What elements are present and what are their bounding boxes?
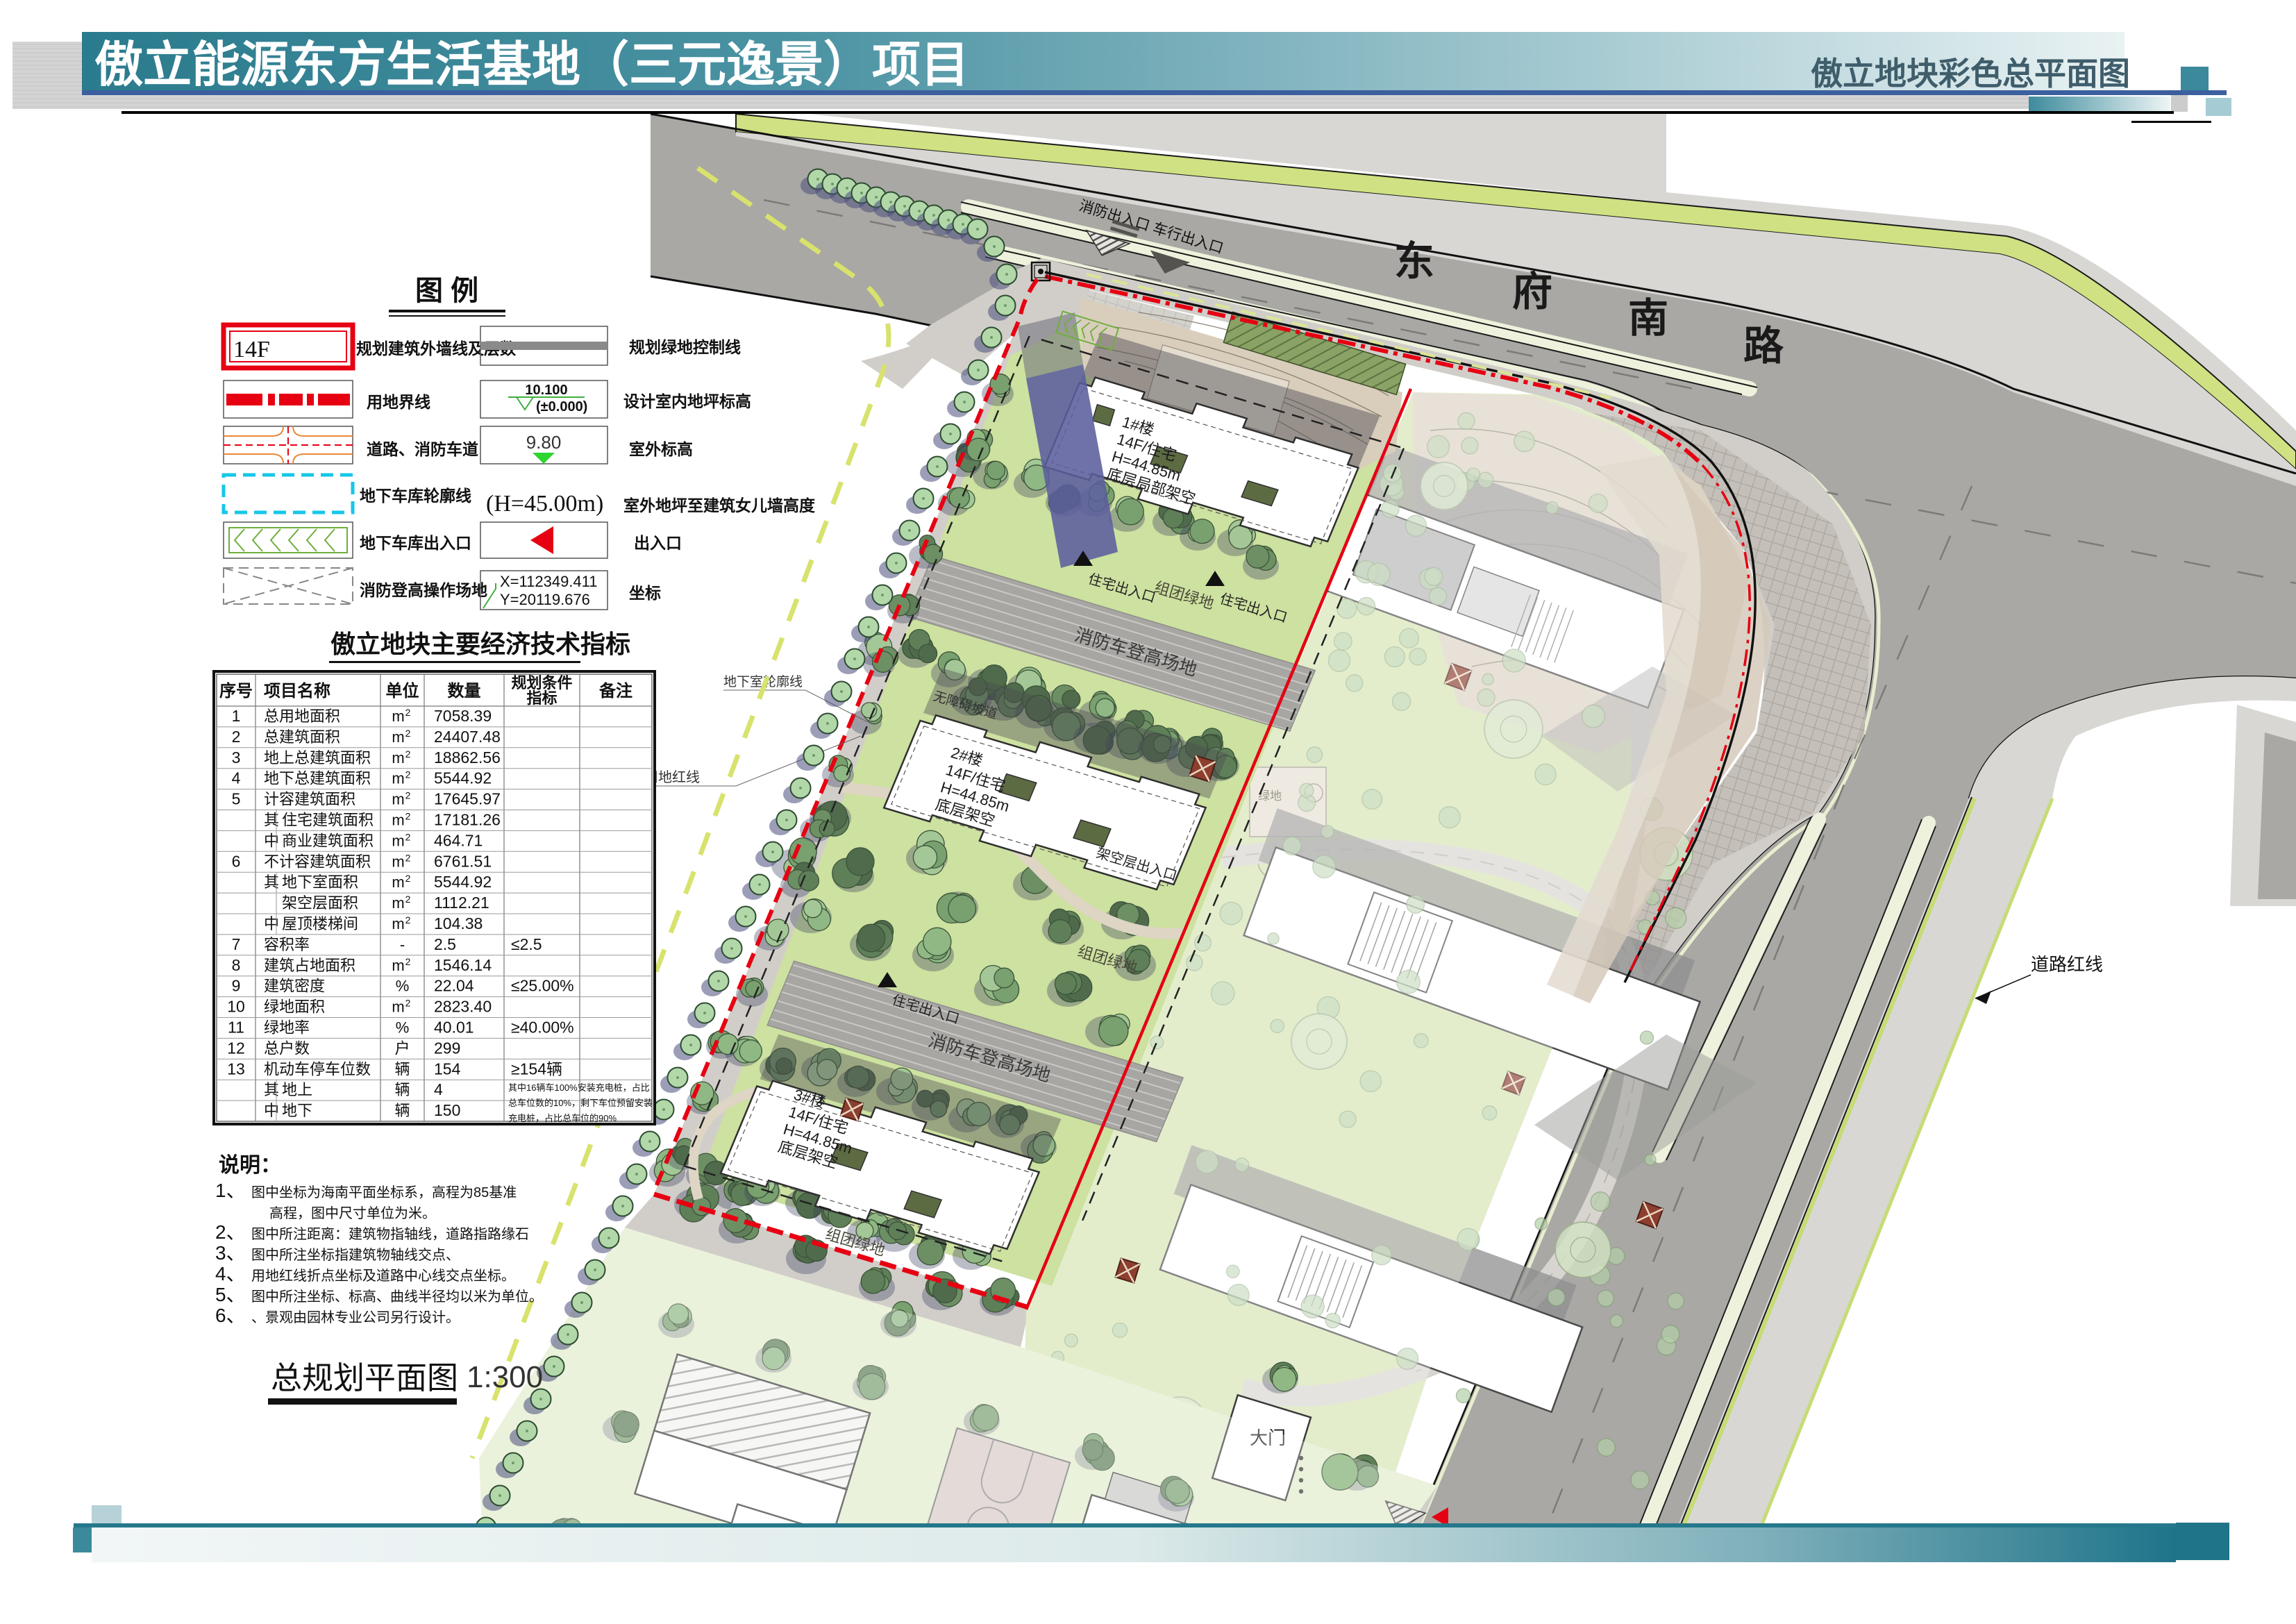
svg-text:≥154辆: ≥154辆 [511,1060,562,1078]
svg-text:地下: 地下 [282,1102,312,1119]
svg-text:指标: 指标 [526,689,557,707]
svg-text:5544.92: 5544.92 [434,769,492,787]
svg-text:m: m [392,915,404,932]
svg-text:总规划平面图: 总规划平面图 [271,1360,458,1396]
svg-text:14F: 14F [233,337,270,362]
svg-text:1:300: 1:300 [467,1360,543,1394]
svg-text:地下车库出入口: 地下车库出入口 [360,534,471,552]
svg-text:2: 2 [405,748,411,760]
svg-text:中: 中 [264,915,279,932]
svg-text:m: m [392,998,404,1016]
svg-text:住宅建筑面积: 住宅建筑面积 [282,812,374,829]
svg-text:道路红线: 道路红线 [2031,954,2103,975]
svg-text:40.01: 40.01 [434,1019,474,1037]
svg-text:辆: 辆 [394,1060,410,1078]
svg-text:154: 154 [434,1060,461,1078]
svg-text:m: m [392,853,404,870]
svg-text:辆: 辆 [394,1102,410,1119]
svg-text:2: 2 [405,956,411,967]
svg-text:2823.40: 2823.40 [434,998,492,1016]
svg-text:m: m [392,812,404,829]
svg-text:m: m [392,770,404,787]
svg-text:其: 其 [264,873,279,891]
svg-text:2: 2 [405,811,411,822]
svg-text:6: 6 [232,852,241,870]
svg-text:序号: 序号 [219,681,253,701]
svg-text:2: 2 [405,769,411,780]
svg-text:图中所注距离：建筑物指轴线，道路指路缘石: 图中所注距离：建筑物指轴线，道路指路缘石 [251,1226,529,1242]
svg-text:说明：: 说明： [219,1154,281,1177]
svg-text:7: 7 [232,935,241,953]
svg-text:m: m [392,791,404,808]
svg-text:%: % [396,978,410,995]
svg-text:2: 2 [405,728,411,739]
svg-text:总建筑面积: 总建筑面积 [264,728,340,746]
svg-text:17181.26: 17181.26 [434,811,501,829]
svg-text:户: 户 [394,1039,410,1057]
svg-text:绿地率: 绿地率 [264,1019,310,1037]
svg-text:傲立地块主要经济技术指标: 傲立地块主要经济技术指标 [330,630,630,658]
svg-text:其中16辆车100%安装充电桩，占比: 其中16辆车100%安装充电桩，占比 [508,1082,650,1093]
svg-text:11: 11 [228,1019,244,1037]
svg-text:图 例: 图 例 [415,276,478,306]
svg-text:架空层面积: 架空层面积 [282,894,358,912]
svg-text:12: 12 [227,1039,245,1057]
svg-text:备注: 备注 [598,681,632,701]
svg-text:设计室内地坪标高: 设计室内地坪标高 [623,392,751,410]
svg-text:7058.39: 7058.39 [434,707,492,725]
svg-text:22.04: 22.04 [434,977,474,995]
svg-text:≤25.00%: ≤25.00% [511,977,574,995]
svg-text:项目名称: 项目名称 [264,681,330,701]
svg-text:地下车库轮廓线: 地下车库轮廓线 [360,487,471,505]
svg-text:m: m [392,708,404,725]
svg-text:1、: 1、 [215,1180,246,1201]
svg-text:1: 1 [232,707,241,725]
svg-text:4: 4 [434,1080,443,1098]
svg-text:建筑占地面积: 建筑占地面积 [264,957,355,974]
svg-text:地上总建筑面积: 地上总建筑面积 [264,749,371,767]
svg-text:13: 13 [227,1060,245,1078]
svg-text:6、: 6、 [215,1305,246,1326]
svg-text:东: 东 [1394,239,1434,284]
svg-text:m: m [392,957,404,974]
svg-text:2.5: 2.5 [434,935,456,953]
svg-text:2: 2 [405,914,411,926]
svg-text:商业建筑面积: 商业建筑面积 [282,832,374,849]
svg-text:充电桩，占比总车位的90%: 充电桩，占比总车位的90% [508,1113,617,1123]
svg-text:道路、消防车道: 道路、消防车道 [367,440,478,458]
svg-text:4、: 4、 [215,1263,246,1284]
svg-text:2: 2 [405,852,411,863]
svg-text:路: 路 [1743,324,1784,369]
svg-text:8: 8 [232,956,241,974]
svg-text:2: 2 [232,728,241,746]
svg-text:9: 9 [232,977,241,995]
svg-text:2: 2 [405,894,411,905]
svg-text:室外地坪至建筑女儿墙高度: 室外地坪至建筑女儿墙高度 [623,496,816,514]
svg-text:-: - [400,936,405,953]
svg-text:≥40.00%: ≥40.00% [511,1019,574,1037]
svg-text:2、: 2、 [215,1221,246,1243]
svg-text:m: m [392,832,404,849]
svg-text:计容建筑面积: 计容建筑面积 [264,791,355,808]
svg-text:Y=20119.676: Y=20119.676 [500,591,590,608]
svg-text:不计容建筑面积: 不计容建筑面积 [264,853,371,870]
svg-text:辆: 辆 [394,1081,410,1098]
svg-text:图中坐标为海南平面坐标系，高程为85基准: 图中坐标为海南平面坐标系，高程为85基准 [251,1184,517,1200]
svg-text:其: 其 [264,1081,279,1098]
svg-text:地下室面积: 地下室面积 [282,873,358,891]
svg-text:(±0.000): (±0.000) [536,399,587,415]
svg-text:室外标高: 室外标高 [629,440,693,458]
svg-text:规划绿地控制线: 规划绿地控制线 [629,338,741,356]
svg-text:104.38: 104.38 [434,914,483,932]
svg-text:1112.21: 1112.21 [434,894,489,912]
svg-text:2: 2 [405,831,411,842]
svg-text:18862.56: 18862.56 [434,748,501,767]
svg-text:1546.14: 1546.14 [434,956,492,974]
svg-text:3、: 3、 [215,1242,246,1264]
svg-text:464.71: 464.71 [434,831,483,849]
svg-text:总户数: 总户数 [264,1039,310,1057]
svg-text:2: 2 [405,707,411,718]
svg-text:容积率: 容积率 [264,936,310,953]
svg-text:傲立能源东方生活基地（三元逸景）项目: 傲立能源东方生活基地（三元逸景）项目 [94,37,969,92]
svg-text:X=112349.411: X=112349.411 [500,573,598,590]
svg-text:用地红线折点坐标及道路中心线交点坐标。: 用地红线折点坐标及道路中心线交点坐标。 [251,1268,515,1284]
svg-text:m: m [392,894,404,912]
svg-text:消防登高操作场地: 消防登高操作场地 [360,581,487,599]
svg-text:、景观由园林专业公司另行设计。: 、景观由园林专业公司另行设计。 [251,1309,460,1325]
svg-text:m: m [392,728,404,746]
svg-text:150: 150 [434,1101,460,1119]
svg-text:地上: 地上 [282,1081,312,1098]
svg-text:m: m [392,749,404,767]
svg-text:用地界线: 用地界线 [367,393,430,411]
svg-text:(H=45.00m): (H=45.00m) [486,491,603,517]
svg-text:299: 299 [434,1039,460,1057]
svg-text:傲立地块彩色总平面图: 傲立地块彩色总平面图 [1811,56,2130,92]
svg-text:5544.92: 5544.92 [434,873,492,891]
svg-text:3: 3 [232,748,241,767]
svg-text:9.80: 9.80 [526,432,562,453]
svg-text:中: 中 [264,1102,279,1119]
svg-text:南: 南 [1628,296,1668,341]
svg-text:数量: 数量 [448,682,481,701]
svg-text:建筑密度: 建筑密度 [264,978,325,995]
svg-text:绿地面积: 绿地面积 [264,998,325,1016]
svg-text:单位: 单位 [386,681,419,701]
svg-text:m: m [392,873,404,891]
svg-text:机动车停车位数: 机动车停车位数 [264,1060,371,1078]
svg-text:17645.97: 17645.97 [434,790,501,808]
svg-text:图中所注坐标指建筑物轴线交点、: 图中所注坐标指建筑物轴线交点、 [251,1247,460,1263]
svg-text:屋顶楼梯间: 屋顶楼梯间 [282,915,358,932]
svg-text:高程，图中尺寸单位为米。: 高程，图中尺寸单位为米。 [269,1205,436,1221]
svg-text:其: 其 [264,812,279,829]
svg-text:5、: 5、 [215,1284,246,1305]
svg-text:10.100: 10.100 [525,383,567,398]
svg-text:10: 10 [227,998,245,1016]
svg-text:2: 2 [405,998,411,1009]
svg-text:24407.48: 24407.48 [434,728,501,746]
svg-text:%: % [396,1019,410,1037]
svg-text:2: 2 [405,790,411,801]
svg-text:图中所注坐标、标高、曲线半径均以米为单位。: 图中所注坐标、标高、曲线半径均以米为单位。 [251,1289,543,1305]
svg-text:府: 府 [1512,269,1552,315]
svg-text:出入口: 出入口 [634,534,682,552]
svg-text:≤2.5: ≤2.5 [511,935,542,953]
svg-text:2: 2 [405,873,411,884]
svg-text:坐标: 坐标 [629,584,661,602]
svg-text:中: 中 [264,832,279,849]
svg-text:6761.51: 6761.51 [434,852,492,870]
svg-text:4: 4 [232,769,241,787]
svg-text:总车位数的10%，剩下车位预留安装: 总车位数的10%，剩下车位预留安装 [508,1098,653,1108]
svg-text:地下总建筑面积: 地下总建筑面积 [264,770,371,787]
svg-text:5: 5 [232,790,241,808]
svg-text:总用地面积: 总用地面积 [264,708,340,725]
